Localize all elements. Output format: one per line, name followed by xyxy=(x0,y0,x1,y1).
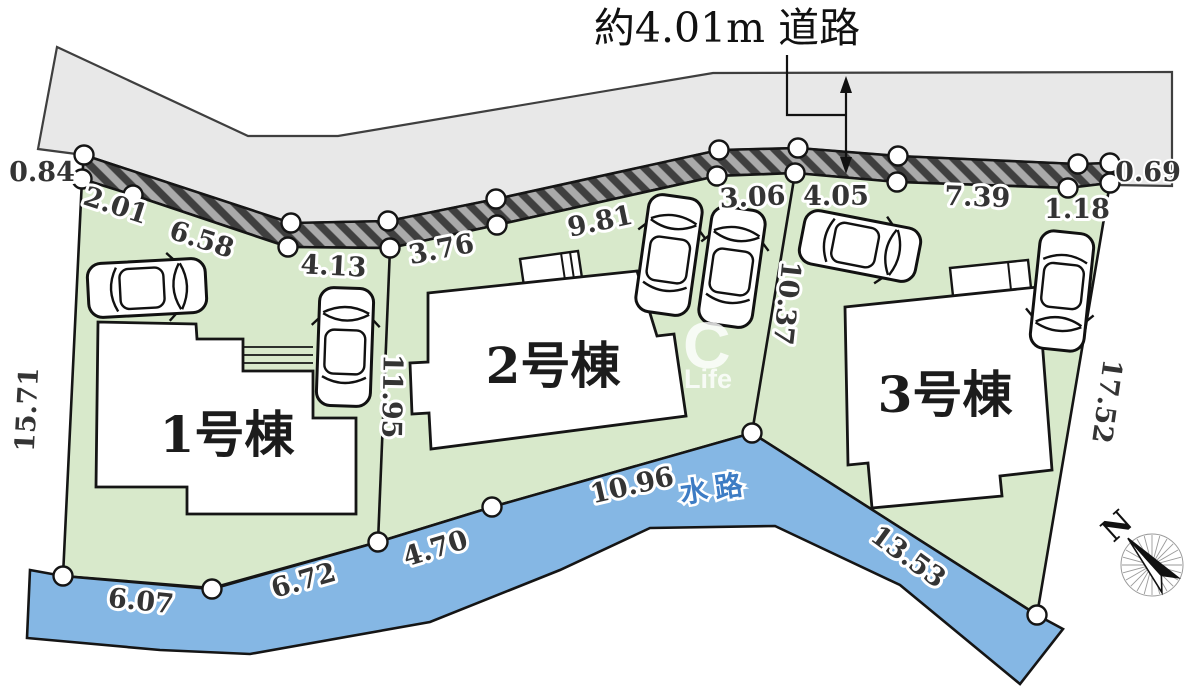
car-lot1-vertical xyxy=(309,287,381,407)
lot2-label: 2号棟 xyxy=(486,336,622,395)
site-plan: 1号棟 2号棟 3号棟 C Life xyxy=(0,0,1200,698)
lot1-label: 1号棟 xyxy=(160,405,296,464)
watermark-word: Life xyxy=(684,364,732,394)
lot3-label: 3号棟 xyxy=(878,365,1014,424)
dim-left-edge: 15.71 xyxy=(10,367,45,453)
dim-6: 3.06 xyxy=(719,180,786,214)
site-plan-canvas: 1号棟 2号棟 3号棟 C Life xyxy=(0,0,1200,698)
dim-boundary-1-2: 11.95 xyxy=(375,354,407,439)
dim-3: 4.13 xyxy=(300,249,367,283)
dim-right-edge: 17.52 xyxy=(1085,357,1127,445)
dim-10: 0.69 xyxy=(1115,157,1181,188)
compass: N xyxy=(1095,503,1183,596)
car-lot1-horizontal xyxy=(86,251,207,325)
dim-7: 4.05 xyxy=(803,181,869,212)
road-title: 約4.01m 道路 xyxy=(594,4,860,52)
dim-8: 7.39 xyxy=(944,181,1011,214)
dim-0: 0.84 xyxy=(9,157,75,188)
watermark: C Life xyxy=(683,308,732,394)
dim-9: 1.18 xyxy=(1044,194,1110,225)
